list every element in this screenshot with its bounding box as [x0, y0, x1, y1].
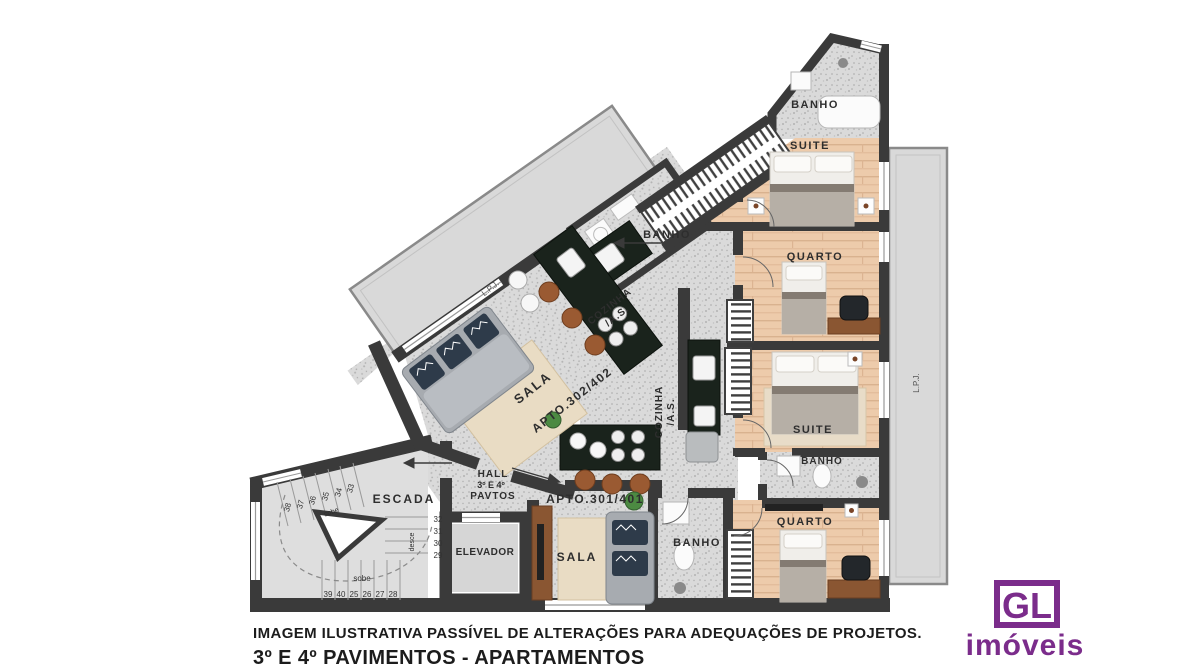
label-banho-mid: BANHO — [643, 229, 691, 241]
floor-plan-page: BANHO SUITE QUARTO SUITE BANHO QUARTO BA… — [0, 0, 1200, 672]
label-banho2: BANHO — [801, 456, 843, 467]
label-sobe-bottom: sobe — [353, 574, 371, 583]
logo-name: imóveis — [966, 629, 1085, 662]
label-suite2: SUITE — [793, 424, 833, 436]
floor-plan: BANHO SUITE QUARTO SUITE BANHO QUARTO BA… — [0, 0, 1200, 672]
svg-text:3º E 4º: 3º E 4º — [477, 480, 505, 490]
label-sala-301: SALA — [557, 550, 598, 564]
svg-text:31: 31 — [434, 527, 443, 536]
gl-imoveis-logo: GL imóveis — [966, 583, 1085, 662]
svg-text:HALL: HALL — [478, 469, 509, 480]
svg-text:25: 25 — [350, 590, 359, 599]
disclaimer-text: IMAGEM ILUSTRATIVA PASSÍVEL DE ALTERAÇÕE… — [253, 624, 922, 642]
elevator-cab — [452, 524, 518, 592]
label-apto-301: APTO.301/401 — [546, 492, 644, 506]
svg-text:32: 32 — [434, 515, 443, 524]
label-quarto1: QUARTO — [787, 251, 843, 263]
svg-text:28: 28 — [389, 590, 398, 599]
label-suite1: SUITE — [790, 140, 830, 152]
label-desce: desce — [409, 533, 416, 552]
svg-text:/A.S.: /A.S. — [666, 398, 677, 425]
floor-title-text: 3º E 4º PAVIMENTOS - APARTAMENTOS — [253, 647, 645, 669]
logo-monogram: GL — [1002, 585, 1052, 626]
svg-text:COZINHA: COZINHA — [654, 386, 665, 439]
svg-text:27: 27 — [376, 590, 385, 599]
label-banho-301: BANHO — [673, 537, 721, 549]
label-quarto2: QUARTO — [777, 516, 833, 528]
label-escada: ESCADA — [373, 492, 436, 506]
svg-text:39: 39 — [324, 590, 333, 599]
svg-text:26: 26 — [363, 590, 372, 599]
label-lpj-right: L.P.J. — [912, 373, 921, 392]
terrace-lpj-right — [889, 148, 947, 584]
svg-text:29: 29 — [434, 551, 443, 560]
svg-text:PAVTOS: PAVTOS — [470, 491, 515, 502]
label-banho-top: BANHO — [791, 99, 839, 111]
svg-text:30: 30 — [434, 539, 443, 548]
label-elevador: ELEVADOR — [456, 547, 515, 558]
svg-text:40: 40 — [337, 590, 346, 599]
